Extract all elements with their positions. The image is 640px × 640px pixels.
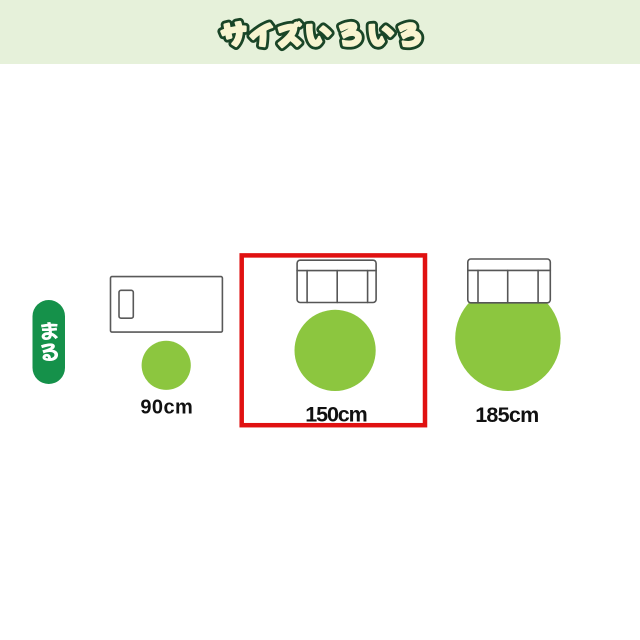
svg-text:185cm: 185cm (475, 403, 539, 427)
svg-text:90cm: 90cm (140, 397, 193, 419)
svg-text:150cm: 150cm (305, 403, 368, 427)
